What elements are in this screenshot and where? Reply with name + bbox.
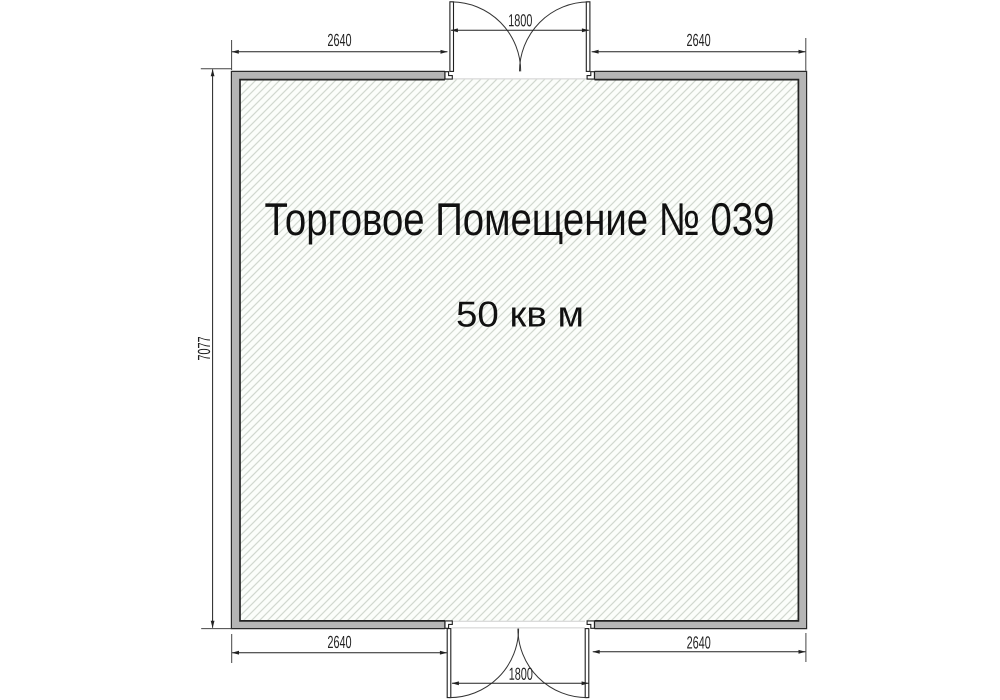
svg-text:Торговое Помещение № 039: Торговое Помещение № 039: [265, 193, 775, 245]
svg-text:50 кв м: 50 кв м: [456, 294, 584, 335]
